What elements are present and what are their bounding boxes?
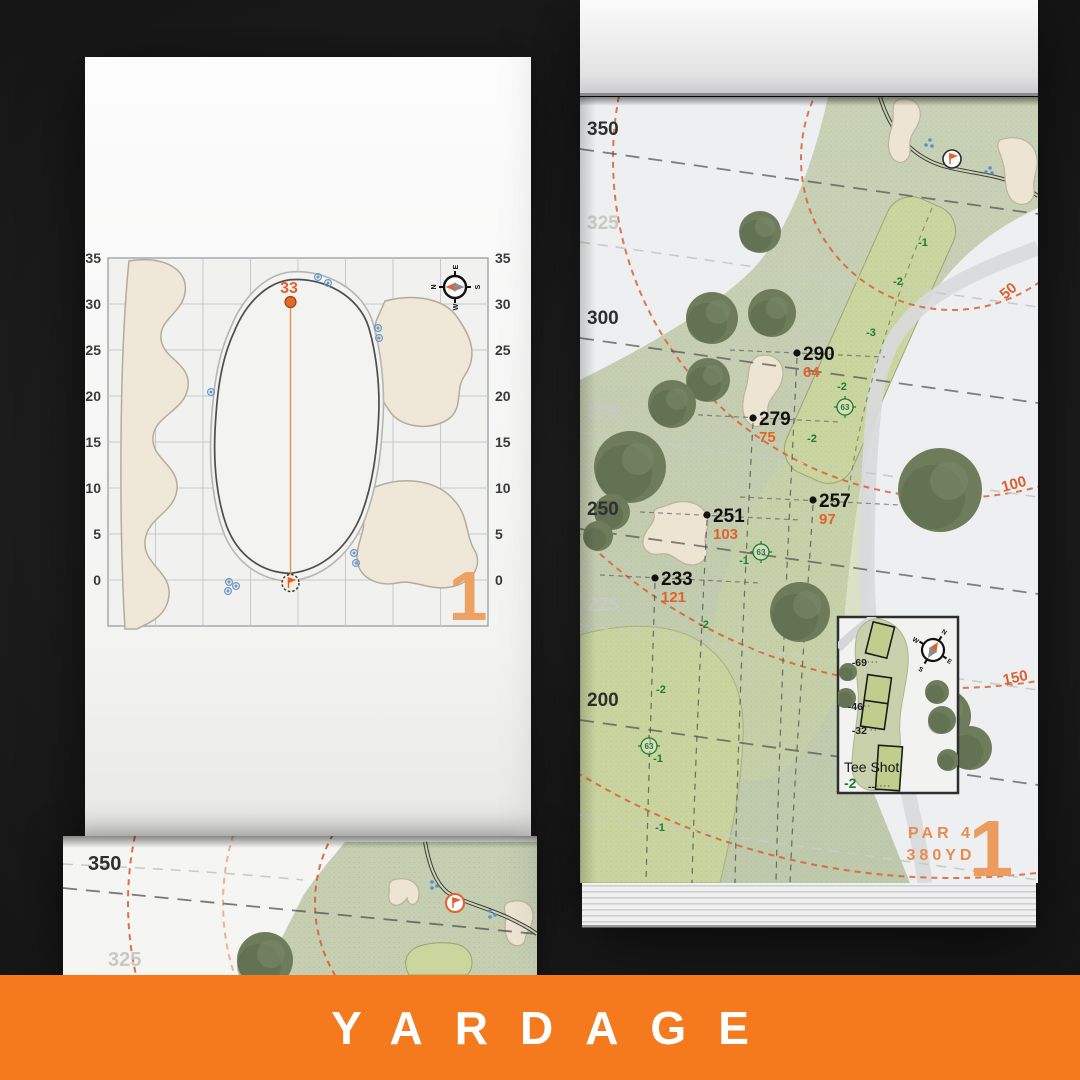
flipped-page	[580, 0, 1038, 106]
axis-tick: 0	[495, 572, 503, 588]
carry-from-tee: 64	[803, 364, 820, 381]
slope-label: -2	[837, 381, 847, 393]
next-page-preview: 350 325	[63, 836, 537, 975]
axis-tick: 30	[85, 296, 101, 312]
tee-shot-inset: -69 -46 -32 -- Tee Shot -2 N E	[836, 617, 965, 793]
compass-w: W	[453, 303, 460, 310]
hole-map-booklet: 63 63 63 -1 -2 -3 -2 -2 -1 -2 -2 -1 -	[580, 0, 1038, 930]
tee-offset: -69	[852, 657, 867, 669]
axis-tick: 20	[85, 388, 101, 404]
hole-number: 1	[449, 557, 488, 635]
axis-tick: 20	[495, 388, 511, 404]
tree	[770, 582, 830, 642]
compass-s: S	[475, 284, 482, 289]
tree	[739, 211, 781, 253]
tree	[925, 680, 949, 704]
fairway-patch	[406, 943, 472, 975]
tee-offset: --	[868, 781, 875, 793]
slope-label: -2	[893, 276, 903, 288]
title-banner: YARDAGE	[0, 975, 1080, 1080]
slope-label: -2	[699, 619, 709, 631]
distance-tick: 325	[108, 949, 141, 971]
green-depth-label: 33	[280, 280, 298, 297]
carry-from-tee: 97	[819, 511, 836, 528]
axis-tick: 15	[495, 434, 511, 450]
tree	[928, 706, 956, 734]
distance-tick: 350	[88, 853, 121, 875]
banner-title: YARDAGE	[299, 1001, 781, 1055]
carry-to-green: 251	[713, 506, 745, 527]
distance-label: 380YD	[907, 847, 976, 864]
slope-label: -1	[655, 822, 665, 834]
axis-tick: 15	[85, 434, 101, 450]
tree	[937, 749, 959, 771]
axis-tick: 35	[495, 250, 511, 266]
tree	[648, 380, 696, 428]
tee-inset-title: Tee Shot	[844, 759, 899, 775]
page-curl-shadow	[63, 836, 537, 848]
slope-label: -1	[739, 555, 749, 567]
carry-from-tee: 103	[713, 526, 738, 543]
tee-offset: -46	[848, 701, 863, 713]
slope-label: -3	[866, 327, 876, 339]
spine-shadow	[580, 97, 596, 883]
slope-label: -2	[656, 684, 666, 696]
sprinkler-yardage-label: 63	[757, 548, 766, 557]
tree	[748, 289, 796, 337]
hole-number: 1	[969, 804, 1014, 893]
tee-inset-slope: -2	[844, 775, 857, 791]
compass-e: E	[453, 264, 460, 269]
sprinkler-yardage-label: 63	[841, 403, 850, 412]
axis-tick: 0	[93, 572, 101, 588]
axis-tick: 5	[93, 526, 101, 542]
slope-label: -1	[918, 237, 928, 249]
green-depth-dot	[285, 297, 296, 308]
carry-to-green: 290	[803, 344, 835, 365]
carry-to-green: 257	[819, 491, 851, 512]
tree	[686, 292, 738, 344]
sprinkler-yardage-label: 63	[645, 742, 654, 751]
bunker-top-right	[375, 298, 472, 427]
slope-label: -1	[653, 753, 663, 765]
carry-to-green: 279	[759, 409, 791, 430]
carry-to-green: 233	[661, 569, 693, 590]
tree	[594, 431, 666, 503]
pin-marker	[943, 150, 961, 168]
slope-label: -2	[807, 433, 817, 445]
axis-tick: 25	[495, 342, 511, 358]
green-detail-page: 33 35 30 25 20 15 10 5 0 35 30 25 20	[85, 57, 531, 838]
par-label: PAR 4	[908, 825, 974, 842]
tree	[898, 448, 982, 532]
axis-tick: 10	[85, 480, 101, 496]
axis-tick: 25	[85, 342, 101, 358]
pin-marker	[282, 575, 299, 592]
carry-from-tee: 75	[759, 429, 776, 446]
green-outline	[211, 272, 384, 581]
carry-from-tee: 121	[661, 589, 686, 606]
axis-tick: 5	[495, 526, 503, 542]
compass-n: N	[431, 284, 438, 289]
axis-tick: 30	[495, 296, 511, 312]
axis-tick: 10	[495, 480, 511, 496]
page-stack-edge	[582, 883, 1036, 928]
tee-offset: -32	[852, 725, 867, 737]
pin-marker	[446, 894, 464, 912]
axis-tick: 35	[85, 250, 101, 266]
